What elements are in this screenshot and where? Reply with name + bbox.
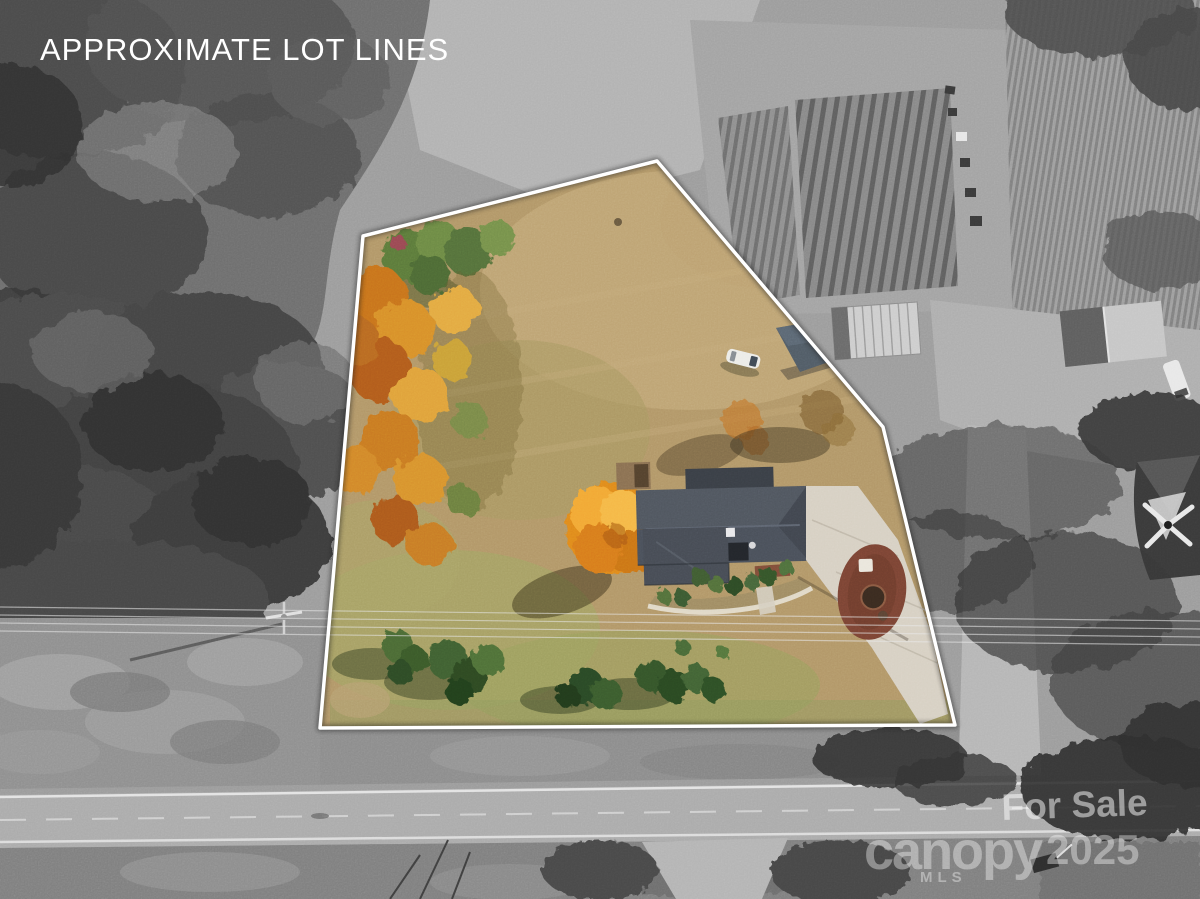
page-title: APPROXIMATE LOT LINES — [40, 32, 449, 67]
watermark-mls-label: MLS — [920, 869, 967, 886]
aerial-photo: APPROXIMATE LOT LINES For Sale canopy ML… — [0, 0, 1200, 899]
aerial-photo-canvas: APPROXIMATE LOT LINES For Sale canopy ML… — [0, 0, 1200, 899]
photo-grain — [0, 0, 1200, 899]
watermark-year: 2025 — [1046, 826, 1139, 873]
